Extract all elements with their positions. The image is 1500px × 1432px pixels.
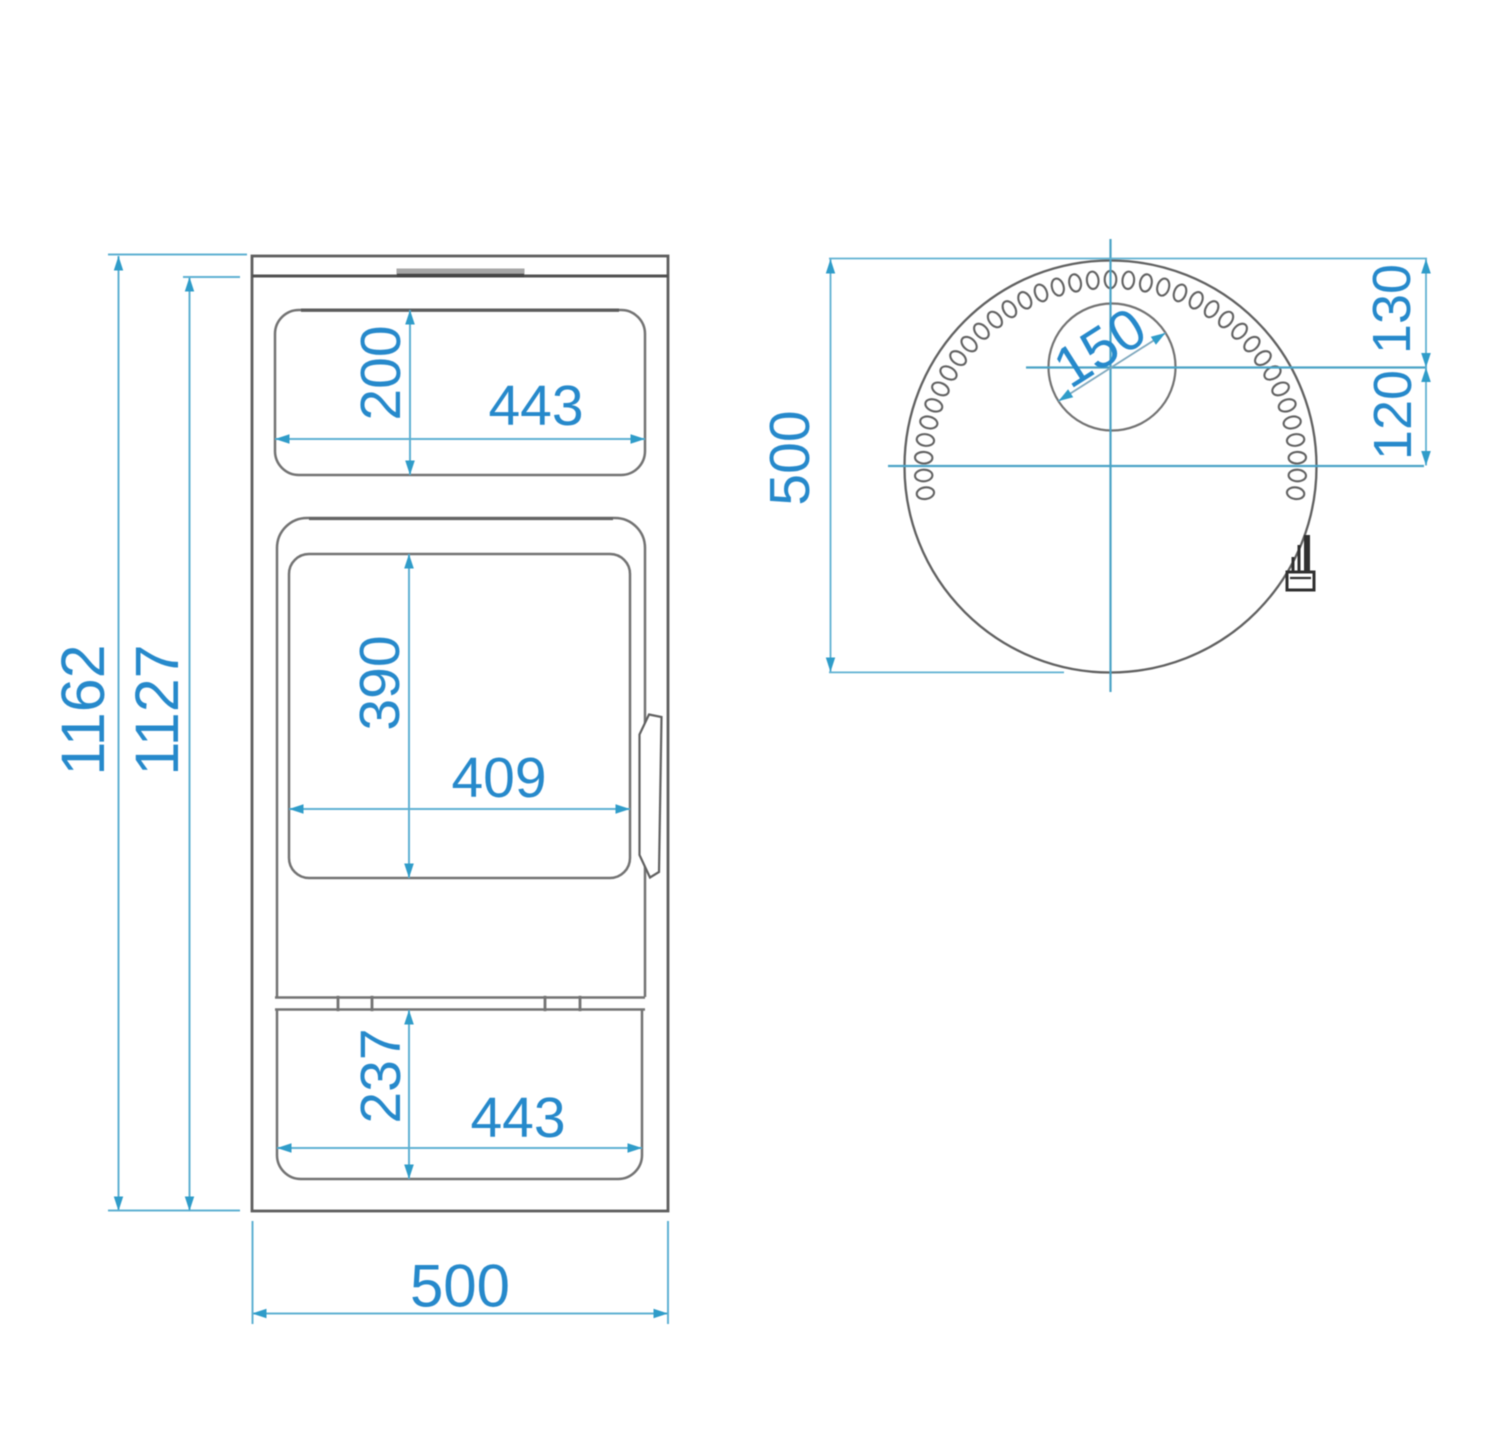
svg-text:120: 120 bbox=[1363, 370, 1423, 460]
svg-text:443: 443 bbox=[488, 374, 583, 438]
svg-text:409: 409 bbox=[451, 746, 546, 810]
svg-text:500: 500 bbox=[410, 1253, 510, 1320]
svg-text:443: 443 bbox=[470, 1086, 565, 1150]
svg-text:390: 390 bbox=[348, 635, 412, 730]
svg-text:1127: 1127 bbox=[123, 644, 191, 775]
svg-text:130: 130 bbox=[1362, 264, 1422, 354]
svg-text:200: 200 bbox=[349, 325, 413, 420]
svg-text:237: 237 bbox=[349, 1028, 413, 1123]
svg-text:500: 500 bbox=[758, 410, 822, 505]
svg-text:1162: 1162 bbox=[49, 644, 117, 775]
